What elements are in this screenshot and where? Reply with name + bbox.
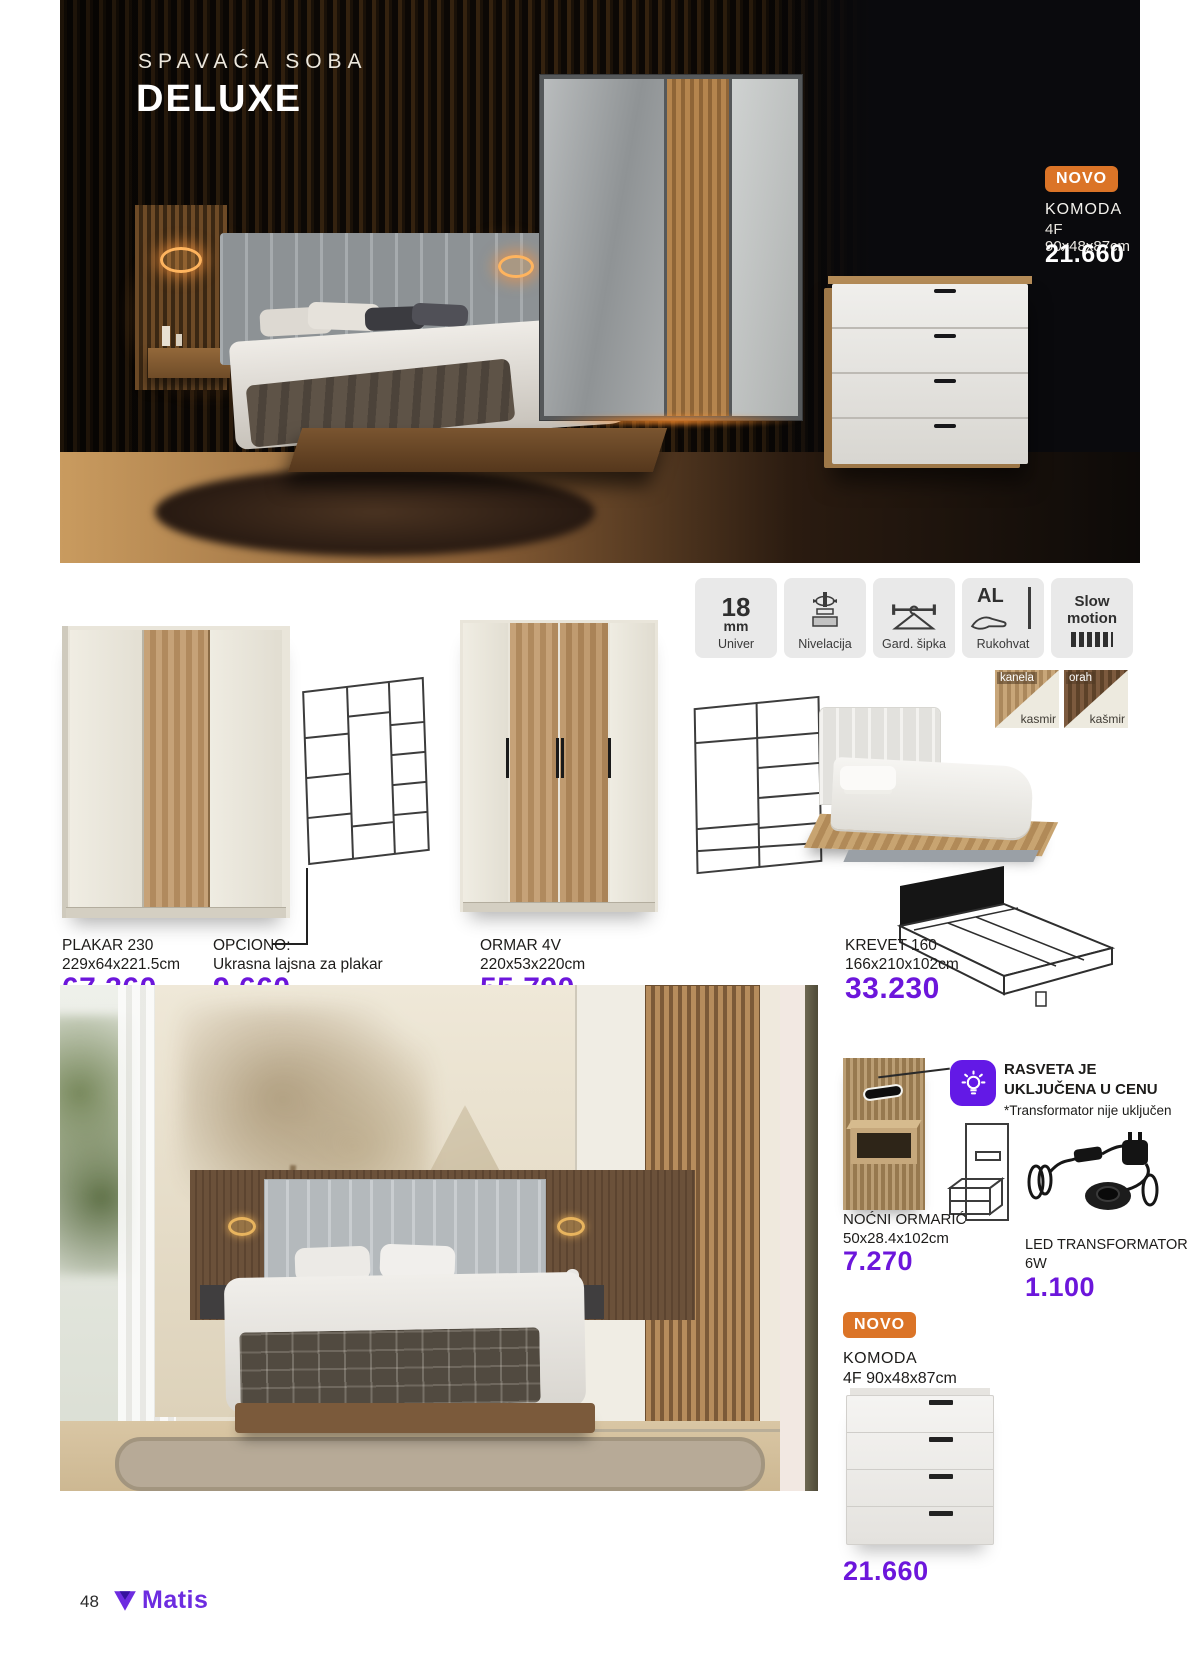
hero-bed-base bbox=[288, 428, 667, 472]
drawer-handle bbox=[934, 334, 956, 338]
hero-wardrobe-door-mirror bbox=[544, 79, 664, 416]
thickness-unit: mm bbox=[724, 618, 749, 634]
novo-badge: NOVO bbox=[843, 1312, 916, 1338]
product-price: 1.100 bbox=[1025, 1278, 1188, 1297]
hero-candle bbox=[176, 334, 182, 346]
hero-nightstand bbox=[148, 348, 230, 378]
hero-product-price: 21.660 bbox=[1045, 240, 1124, 269]
product-price: 33.230 bbox=[845, 979, 959, 998]
hero-ring-lamp-right bbox=[498, 255, 534, 278]
novo-badge: NOVO bbox=[1045, 166, 1118, 192]
hero-candle bbox=[162, 326, 170, 346]
feature-slow-motion: Slow motion bbox=[1051, 578, 1133, 658]
plakar-photo bbox=[62, 626, 290, 918]
ormar-plinth bbox=[463, 902, 655, 912]
komoda-drawer bbox=[847, 1396, 993, 1433]
matis-logo-icon bbox=[112, 1588, 138, 1614]
drawer-handle bbox=[934, 424, 956, 428]
feature-nivelacija: Nivelacija bbox=[784, 578, 866, 658]
komoda-photo bbox=[846, 1388, 994, 1550]
ormar-door-cream bbox=[610, 623, 655, 903]
lighting-note-line2: UKLJUČENA U CENU bbox=[1004, 1080, 1179, 1100]
dresser-drawer bbox=[832, 329, 1028, 374]
led-transformator-photo bbox=[1022, 1130, 1162, 1218]
drawer-handle bbox=[929, 1437, 953, 1442]
shelf-box bbox=[851, 1128, 917, 1164]
dresser-drawer bbox=[832, 284, 1028, 329]
thickness-value: 18 bbox=[722, 596, 751, 618]
feature-label: Gard. šipka bbox=[882, 637, 946, 651]
area-rug bbox=[115, 1437, 765, 1491]
door-rail bbox=[575, 1429, 805, 1432]
bottom-bedroom-photo bbox=[60, 985, 818, 1491]
komoda-drawer bbox=[847, 1507, 993, 1544]
swatch-label-bottom: kašmir bbox=[1090, 712, 1125, 726]
shelf-opening bbox=[857, 1133, 911, 1158]
plakar-door-cream bbox=[70, 630, 144, 908]
handle-bar-shape bbox=[1028, 587, 1031, 629]
light-included-icon bbox=[950, 1060, 996, 1106]
product-name: OPCIONO: bbox=[213, 936, 383, 955]
catalog-page: SPAVAĆA SOBA DELUXE NOVO KOMODA 4F 90x48… bbox=[0, 0, 1199, 1674]
nocni-ormaric-photo bbox=[843, 1058, 925, 1210]
feature-rukohvat: AL Rukohvat bbox=[962, 578, 1044, 658]
led-light-oval bbox=[862, 1083, 903, 1101]
page-number: 48 bbox=[80, 1592, 99, 1612]
plaid-throw bbox=[239, 1327, 540, 1407]
bulb-icon bbox=[960, 1070, 987, 1097]
page-title: DELUXE bbox=[136, 78, 302, 121]
drawer-handle bbox=[934, 379, 956, 383]
feature-univer: 18 mm Univer bbox=[695, 578, 777, 658]
drawer-handle bbox=[929, 1474, 953, 1479]
hero-pillow bbox=[411, 303, 468, 328]
product-price: 7.270 bbox=[843, 1252, 966, 1271]
slow-motion-bars-icon bbox=[1071, 632, 1113, 647]
ormar-handle bbox=[561, 738, 564, 778]
drawer-handle bbox=[929, 1400, 953, 1405]
komoda-drawer bbox=[847, 1470, 993, 1507]
hero-dresser bbox=[832, 284, 1028, 464]
dark-edge-strip bbox=[805, 985, 818, 1491]
krevet-photo bbox=[806, 700, 1062, 880]
drawer-handle bbox=[929, 1511, 953, 1516]
hero-underglow bbox=[547, 414, 799, 427]
feature-label: Nivelacija bbox=[798, 637, 852, 651]
lighting-note: RASVETA JE UKLJUČENA U CENU *Transformat… bbox=[1004, 1060, 1179, 1120]
plakar-door-cream bbox=[210, 630, 282, 908]
feature-label: Rukohvat bbox=[977, 637, 1030, 651]
product-name: NOĆNI ORMARIĆ bbox=[843, 1210, 966, 1229]
slow-motion-line2: motion bbox=[1067, 610, 1117, 627]
product-name: LED TRANSFORMATOR bbox=[1025, 1236, 1188, 1255]
komoda-dims: 4F 90x48x87cm bbox=[843, 1370, 957, 1388]
hero-wardrobe-door-light bbox=[732, 79, 798, 416]
product-name: ORMAR 4V bbox=[480, 936, 585, 955]
hero-subtitle: SPAVAĆA SOBA bbox=[138, 50, 368, 74]
komoda-name: KOMODA bbox=[843, 1350, 917, 1368]
color-swatch-orah-kasmir: orah kašmir bbox=[1064, 670, 1128, 728]
opciono-connector-line bbox=[306, 868, 308, 945]
feature-icons-row: 18 mm Univer Nivelacija Gard. bbox=[695, 578, 1133, 658]
leveling-foot-icon bbox=[809, 590, 841, 634]
ormar-photo bbox=[460, 620, 658, 912]
dresser-drawer bbox=[832, 419, 1028, 464]
komoda-price: 21.660 bbox=[843, 1556, 929, 1587]
nocni-ormaric-label: NOĆNI ORMARIĆ 50x28.4x102cm 7.270 bbox=[843, 1210, 966, 1271]
drawer-handle bbox=[934, 289, 956, 293]
hanger-icon bbox=[890, 602, 938, 634]
bed-pillow bbox=[840, 766, 896, 790]
ormar-door-wood bbox=[560, 623, 608, 903]
al-text: AL bbox=[977, 585, 1004, 608]
komoda-drawer bbox=[847, 1433, 993, 1470]
slow-motion-line1: Slow bbox=[1074, 593, 1109, 610]
matis-logo: Matis bbox=[112, 1586, 208, 1615]
plakar-door-wood bbox=[144, 630, 210, 908]
hero-product-name: KOMODA bbox=[1045, 201, 1122, 219]
transformer-note: *Transformator nije uključen bbox=[1004, 1102, 1179, 1120]
hand-icon bbox=[970, 610, 1010, 632]
krevet-label: KREVET 160 166x210x102cm 33.230 bbox=[845, 936, 959, 998]
hero-dresser-top bbox=[828, 276, 1032, 284]
ormar-handle bbox=[556, 738, 559, 778]
hero-ring-lamp-left bbox=[160, 247, 202, 273]
product-name: KREVET 160 bbox=[845, 936, 959, 955]
wall-lamp bbox=[228, 1217, 256, 1236]
hero-wardrobe-wood-panel bbox=[667, 79, 729, 416]
side-wall bbox=[780, 985, 805, 1491]
lighting-note-line1: RASVETA JE bbox=[1004, 1060, 1179, 1080]
led-transformator-label: LED TRANSFORMATOR 6W 1.100 bbox=[1025, 1236, 1188, 1297]
bed-wood-base bbox=[235, 1403, 595, 1433]
ormar-door-wood bbox=[510, 623, 558, 903]
swatch-label-top: kanela bbox=[997, 672, 1037, 684]
wall-lamp bbox=[557, 1217, 585, 1236]
ormar-handle bbox=[608, 738, 611, 778]
hero-rug bbox=[155, 468, 595, 556]
plakar-plinth bbox=[66, 907, 286, 918]
ormar-door-cream bbox=[463, 623, 508, 903]
ormar-handle bbox=[506, 738, 509, 778]
matis-logo-text: Matis bbox=[142, 1586, 208, 1615]
komoda-top-face bbox=[850, 1388, 990, 1395]
product-name: PLAKAR 230 bbox=[62, 936, 180, 955]
hero-bedroom-photo: SPAVAĆA SOBA DELUXE NOVO KOMODA 4F 90x48… bbox=[60, 0, 1140, 563]
dresser-drawer bbox=[832, 374, 1028, 419]
sliding-panel-cream bbox=[760, 985, 780, 1431]
feature-label: Univer bbox=[718, 637, 754, 651]
feature-gard-sipka: Gard. šipka bbox=[873, 578, 955, 658]
wardrobe-interior-sketch bbox=[297, 674, 436, 870]
swatch-label-top: orah bbox=[1066, 672, 1095, 684]
komoda-body bbox=[846, 1395, 994, 1545]
